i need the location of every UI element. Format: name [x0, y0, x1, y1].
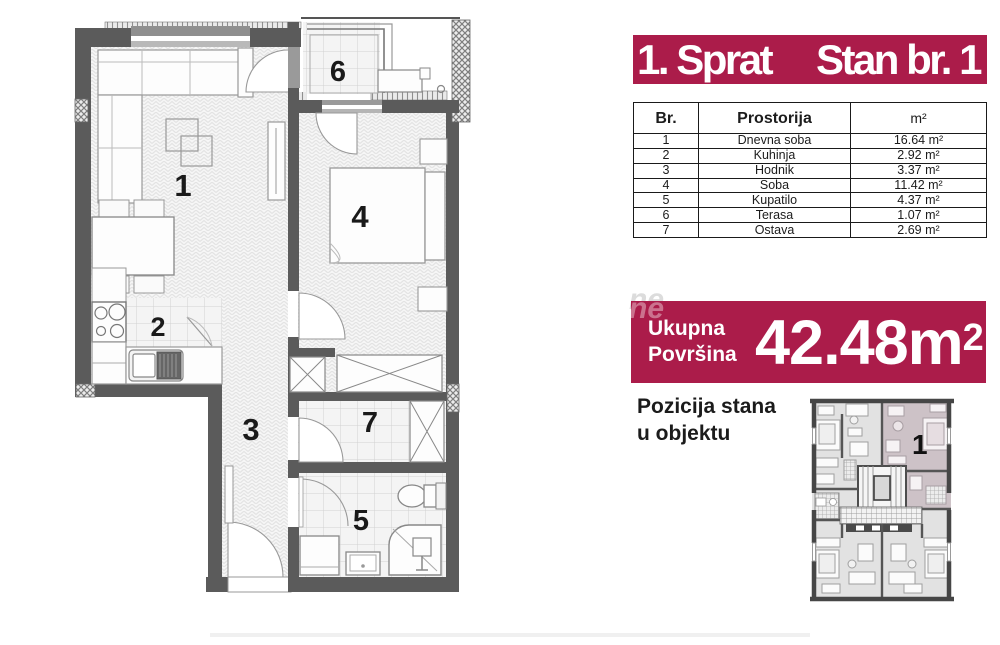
- svg-text:1: 1: [912, 429, 928, 460]
- svg-text:7: 7: [362, 407, 378, 439]
- svg-text:5: 5: [353, 505, 369, 537]
- svg-text:4: 4: [351, 199, 369, 234]
- svg-text:2: 2: [150, 312, 165, 342]
- svg-text:1: 1: [174, 168, 191, 203]
- svg-text:6: 6: [330, 56, 346, 88]
- svg-text:3: 3: [242, 412, 259, 447]
